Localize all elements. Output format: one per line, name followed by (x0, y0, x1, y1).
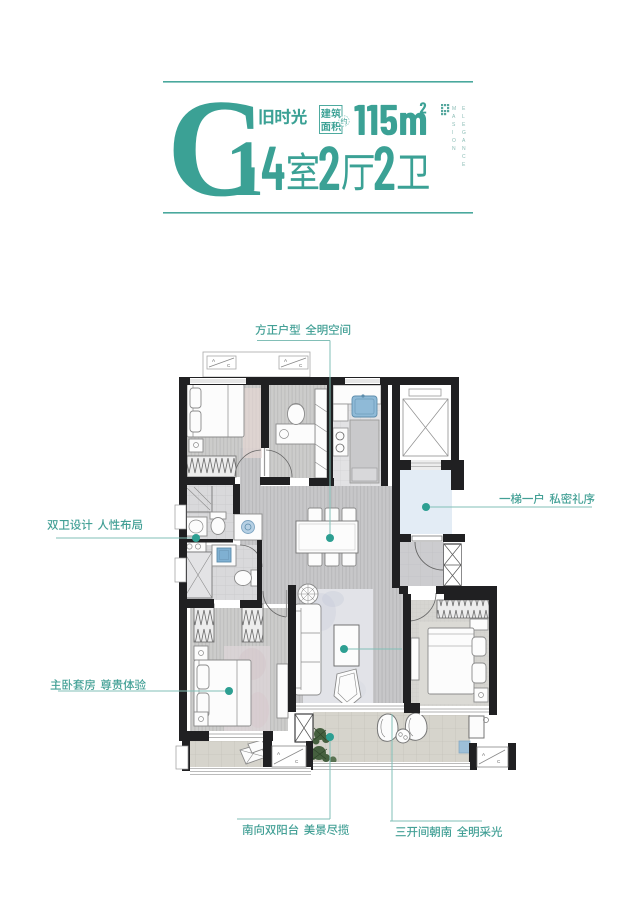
svg-text:L: L (462, 114, 465, 120)
svg-text:I: I (452, 130, 453, 136)
svg-text:O: O (452, 138, 456, 144)
svg-text:M: M (452, 106, 456, 112)
svg-text:C: C (462, 154, 466, 160)
svg-text:N: N (462, 146, 466, 152)
svg-text:N: N (452, 146, 456, 152)
svg-text:G: G (462, 130, 466, 136)
